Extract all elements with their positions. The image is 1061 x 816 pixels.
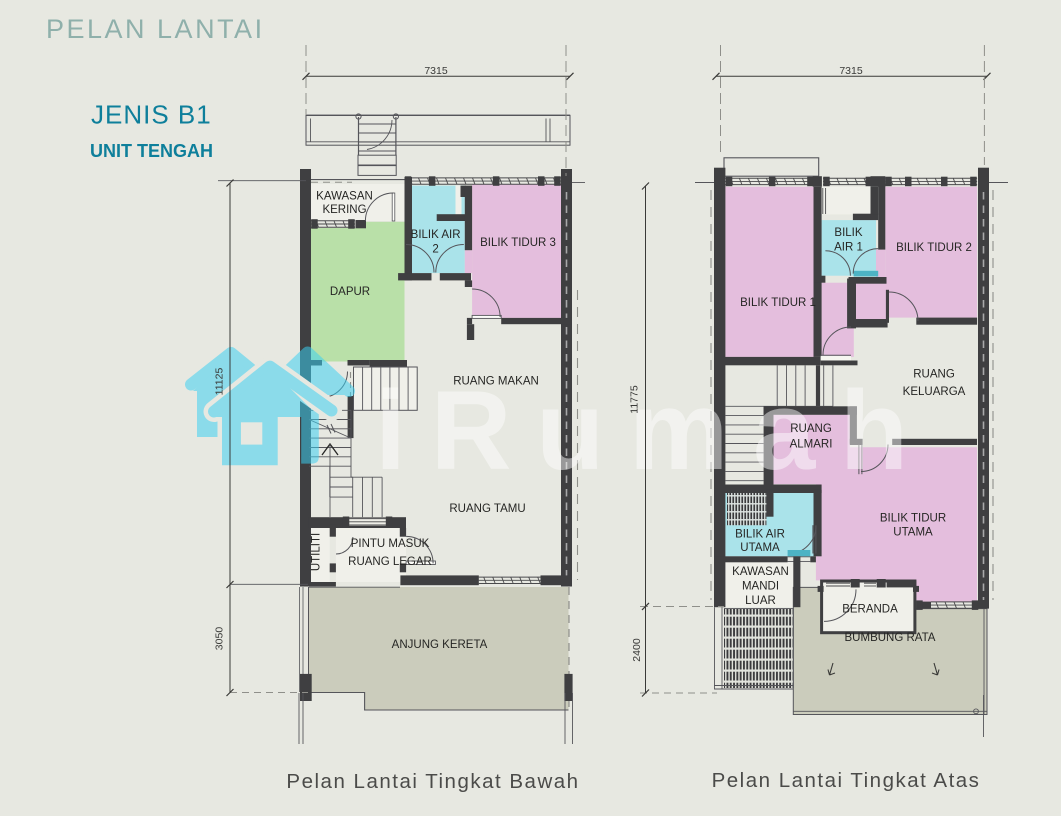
svg-text:BILIK TIDUR 1: BILIK TIDUR 1 xyxy=(740,297,816,309)
svg-text:3050: 3050 xyxy=(214,627,226,651)
svg-text:DAPUR: DAPUR xyxy=(330,286,370,298)
svg-text:BERANDA: BERANDA xyxy=(842,604,898,616)
svg-text:UTILITI: UTILITI xyxy=(311,533,323,571)
svg-text:ALMARI: ALMARI xyxy=(790,439,833,451)
svg-text:2: 2 xyxy=(432,244,438,256)
svg-text:7315: 7315 xyxy=(839,65,863,77)
svg-text:11775: 11775 xyxy=(629,385,641,414)
svg-text:Pelan Lantai Tingkat Bawah: Pelan Lantai Tingkat Bawah xyxy=(286,770,579,793)
svg-text:Pelan Lantai Tingkat Atas: Pelan Lantai Tingkat Atas xyxy=(712,769,981,792)
svg-text:KERING: KERING xyxy=(322,204,366,216)
svg-text:AIR 1: AIR 1 xyxy=(834,242,863,254)
svg-text:MANDI: MANDI xyxy=(742,581,779,593)
svg-text:KAWASAN: KAWASAN xyxy=(732,566,789,578)
svg-text:RUANG MAKAN: RUANG MAKAN xyxy=(453,376,539,388)
svg-text:KELUARGA: KELUARGA xyxy=(903,386,966,398)
svg-text:7315: 7315 xyxy=(424,65,448,77)
svg-text:RUANG: RUANG xyxy=(790,423,832,435)
svg-text:BILIK TIDUR 2: BILIK TIDUR 2 xyxy=(896,242,972,254)
svg-text:RUANG: RUANG xyxy=(913,369,955,381)
svg-text:11125: 11125 xyxy=(214,368,226,396)
svg-text:RUANG LEGAR: RUANG LEGAR xyxy=(348,556,432,568)
svg-text:RUANG TAMU: RUANG TAMU xyxy=(449,503,525,515)
svg-text:LUAR: LUAR xyxy=(745,595,776,607)
svg-text:UNIT TENGAH: UNIT TENGAH xyxy=(90,141,213,161)
svg-text:BILIK: BILIK xyxy=(834,227,862,239)
svg-text:PINTU MASUK: PINTU MASUK xyxy=(351,538,430,550)
svg-text:2400: 2400 xyxy=(631,638,643,662)
svg-text:BILIK AIR: BILIK AIR xyxy=(411,229,461,241)
svg-text:UTAMA: UTAMA xyxy=(740,542,780,554)
svg-text:PELAN LANTAI: PELAN LANTAI xyxy=(46,14,265,44)
svg-text:JENIS B1: JENIS B1 xyxy=(91,100,212,130)
svg-text:BILIK TIDUR: BILIK TIDUR xyxy=(880,513,946,525)
svg-text:ANJUNG KERETA: ANJUNG KERETA xyxy=(392,639,488,651)
svg-text:BILIK AIR: BILIK AIR xyxy=(735,529,785,541)
svg-text:KAWASAN: KAWASAN xyxy=(316,191,373,203)
svg-text:UTAMA: UTAMA xyxy=(893,527,933,539)
svg-text:BILIK TIDUR 3: BILIK TIDUR 3 xyxy=(480,237,556,249)
svg-text:BUMBUNG RATA: BUMBUNG RATA xyxy=(845,632,936,644)
